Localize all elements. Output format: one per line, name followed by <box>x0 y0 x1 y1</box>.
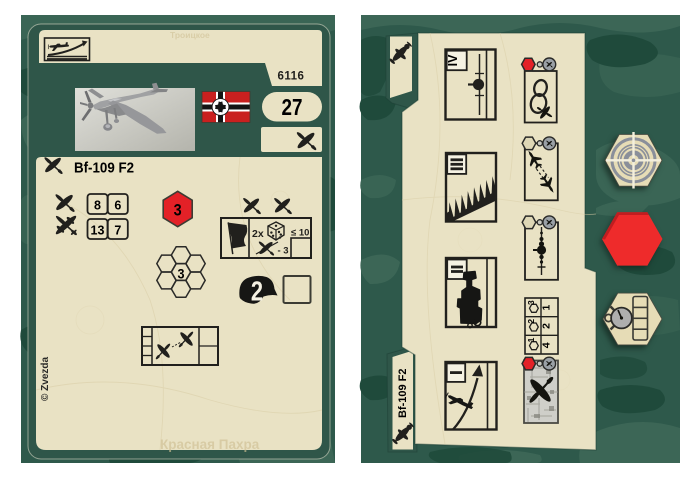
svg-text:- 3: - 3 <box>278 246 289 257</box>
svg-text:Троицкое: Троицкое <box>170 30 210 40</box>
svg-text:≤ 10: ≤ 10 <box>291 228 309 239</box>
svg-text:Bf-109 F2: Bf-109 F2 <box>397 368 409 418</box>
svg-text:1: 1 <box>541 305 553 311</box>
svg-text:2: 2 <box>251 276 263 307</box>
svg-text:Красная Пахра: Красная Пахра <box>160 437 260 452</box>
svg-text:2x: 2x <box>252 228 264 240</box>
svg-text:IV: IV <box>446 54 460 66</box>
svg-text:6: 6 <box>114 199 121 213</box>
svg-text:Bf-109 F2: Bf-109 F2 <box>74 159 134 176</box>
svg-text:8: 8 <box>94 199 101 213</box>
svg-text:3: 3 <box>526 300 536 305</box>
svg-text:© Zvezda: © Zvezda <box>40 357 51 401</box>
svg-text:3: 3 <box>174 201 182 219</box>
svg-text:4: 4 <box>541 342 553 348</box>
svg-text:1: 1 <box>526 337 536 342</box>
svg-text:6116: 6116 <box>278 71 305 83</box>
svg-text:7: 7 <box>114 224 121 238</box>
svg-text:2: 2 <box>526 319 536 324</box>
svg-text:2: 2 <box>541 323 553 329</box>
svg-text:27: 27 <box>282 95 303 120</box>
svg-text:3: 3 <box>177 266 184 282</box>
svg-text:13: 13 <box>91 224 105 238</box>
